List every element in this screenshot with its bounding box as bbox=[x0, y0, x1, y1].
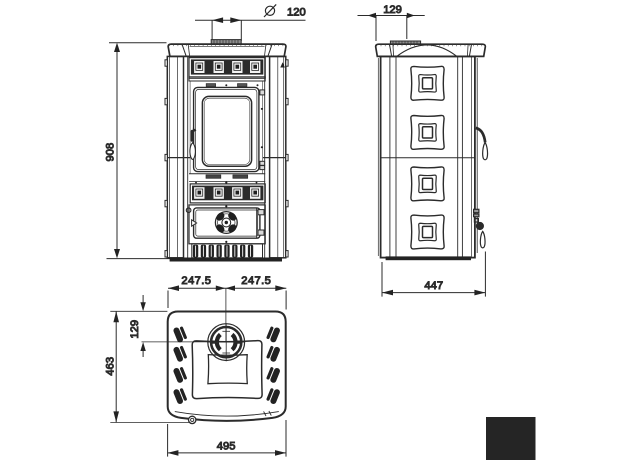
svg-text:247.5: 247.5 bbox=[181, 275, 211, 287]
svg-text:908: 908 bbox=[105, 143, 117, 162]
svg-text:129: 129 bbox=[129, 320, 141, 339]
svg-text:129: 129 bbox=[383, 4, 402, 16]
svg-text:463: 463 bbox=[104, 357, 116, 376]
svg-text:247.5: 247.5 bbox=[241, 275, 271, 287]
svg-text:495: 495 bbox=[217, 440, 236, 452]
svg-text:447: 447 bbox=[424, 280, 443, 292]
svg-text:120: 120 bbox=[287, 7, 306, 19]
